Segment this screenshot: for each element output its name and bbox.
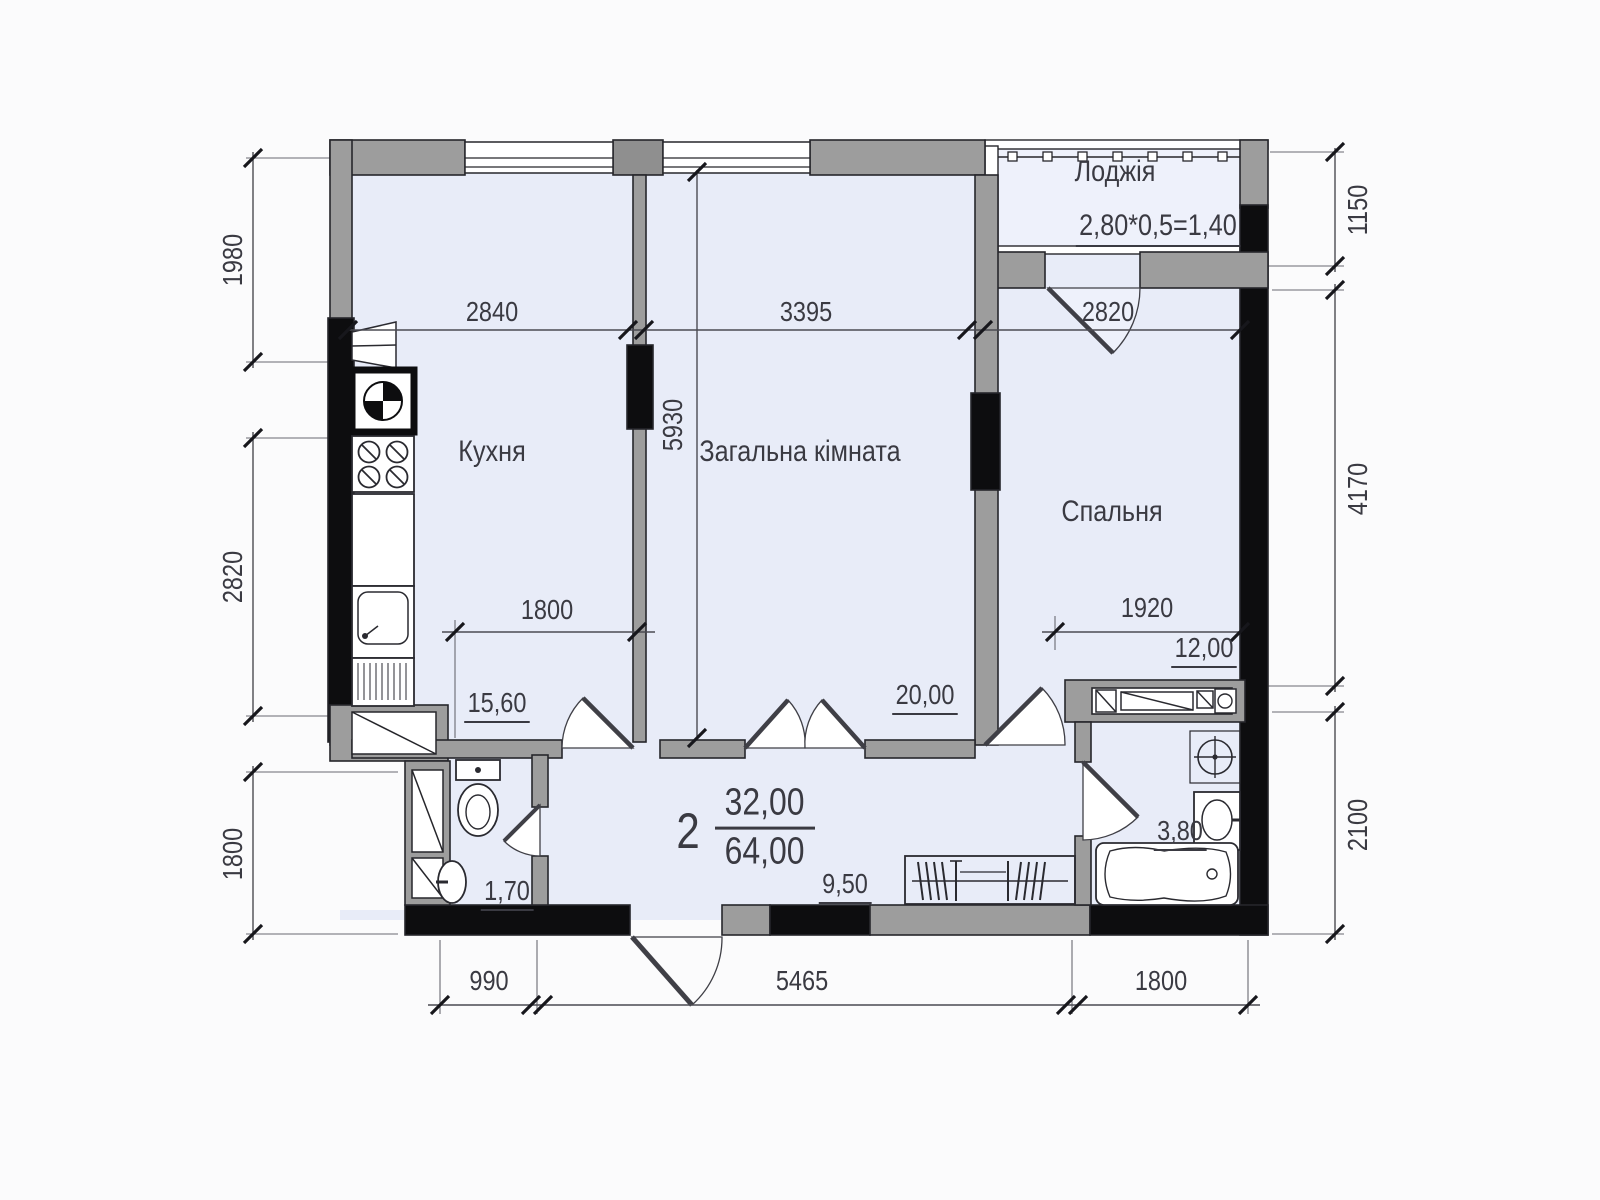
loggia-label: Лоджія	[1075, 155, 1156, 189]
dim-right-bottom: 2100	[1342, 799, 1374, 851]
dim-kitchen-width: 1800	[521, 594, 573, 626]
dim-left-mid: 2820	[217, 551, 249, 603]
dim-top-kitchen: 2840	[466, 296, 518, 328]
kitchen-window	[465, 142, 613, 173]
kitchen-label: Кухня	[458, 435, 525, 469]
dim-room-depth: 5930	[657, 399, 689, 451]
area-fraction: 32,00 64,00	[715, 784, 815, 873]
drying-rack-icon	[352, 658, 414, 706]
rooms-count-label: 2	[676, 802, 699, 860]
toilet-icon	[456, 760, 500, 836]
kitchen-sink-icon	[352, 586, 414, 658]
dim-top-bedroom: 2820	[1082, 296, 1134, 328]
living-room-area-label: 20,00	[892, 679, 958, 715]
dim-left-top: 1980	[217, 234, 249, 286]
hall-area-label: 9,50	[819, 868, 872, 904]
bathroom-area-label: 3,80	[1154, 815, 1207, 851]
vent-box-icon	[352, 370, 414, 432]
wc-area-label: 1,70	[481, 875, 534, 911]
bedroom-label: Спальня	[1061, 495, 1162, 529]
dim-bottom-right: 1800	[1135, 965, 1187, 997]
bathtub-icon	[1096, 843, 1238, 905]
kitchen-area-label: 15,60	[464, 687, 530, 723]
total-area-label: 64,00	[725, 833, 805, 873]
kitchen-counter	[352, 494, 414, 586]
living-area-total-label: 32,00	[725, 784, 805, 824]
stove-icon	[352, 436, 414, 492]
dim-right-mid: 4170	[1342, 463, 1374, 515]
dim-bottom-mid: 5465	[776, 965, 828, 997]
fraction-line	[715, 827, 815, 830]
bedroom-area-label: 12,00	[1171, 632, 1237, 668]
dim-left-bottom: 1800	[217, 828, 249, 880]
washing-machine-icon	[1215, 689, 1236, 713]
dim-bottom-left: 990	[469, 965, 508, 997]
dim-top-living: 3395	[780, 296, 832, 328]
living-room-label: Загальна кімната	[699, 435, 900, 469]
loggia-area-formula: 2,80*0,5=1,40	[1076, 209, 1240, 247]
living-room-window	[663, 142, 810, 173]
dim-right-top: 1150	[1342, 185, 1374, 236]
entrance-door	[632, 937, 722, 1005]
floor-plan: Лоджія 2,80*0,5=1,40 Кухня Загальна кімн…	[0, 0, 1600, 1200]
kitchen-fixtures	[352, 322, 414, 706]
dim-bedroom-width: 1920	[1121, 592, 1173, 624]
